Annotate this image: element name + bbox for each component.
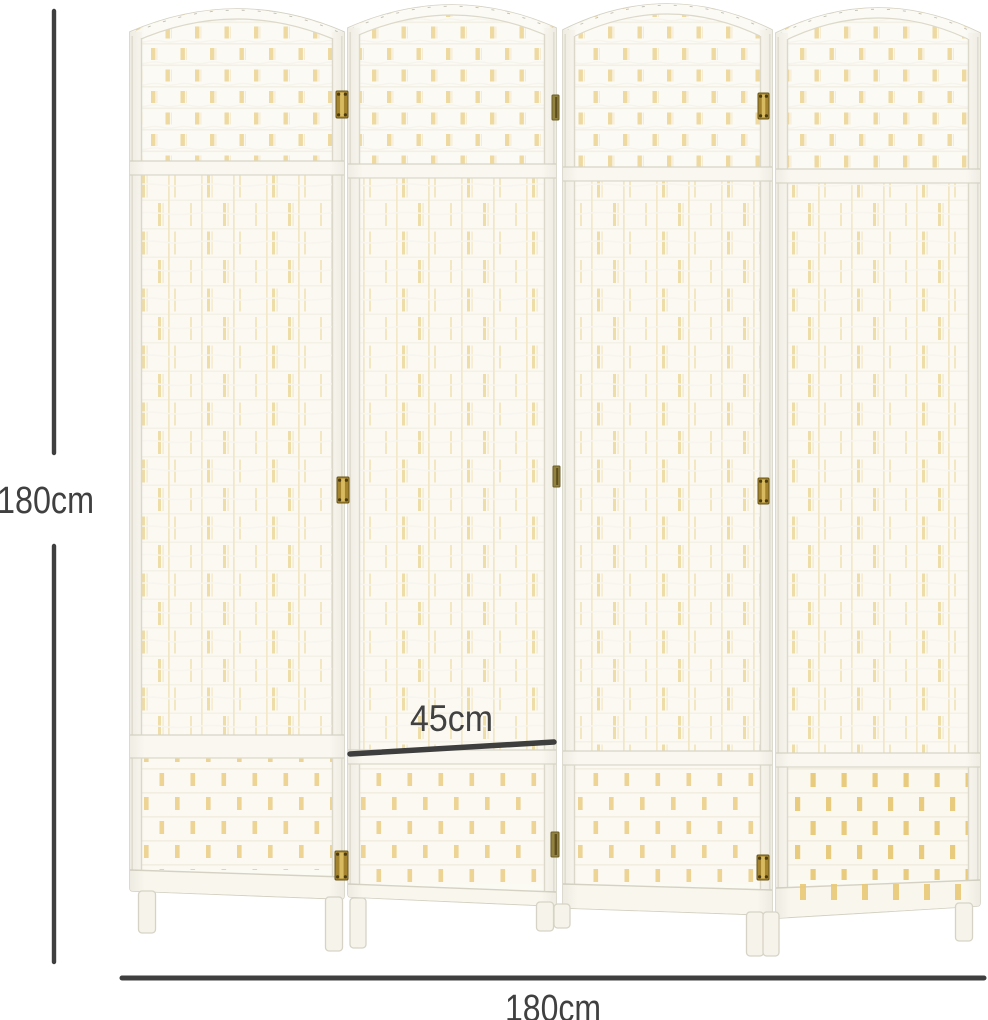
svg-text:45cm: 45cm [410, 698, 493, 739]
svg-text:180cm: 180cm [505, 988, 601, 1020]
svg-text:180cm: 180cm [0, 480, 94, 522]
